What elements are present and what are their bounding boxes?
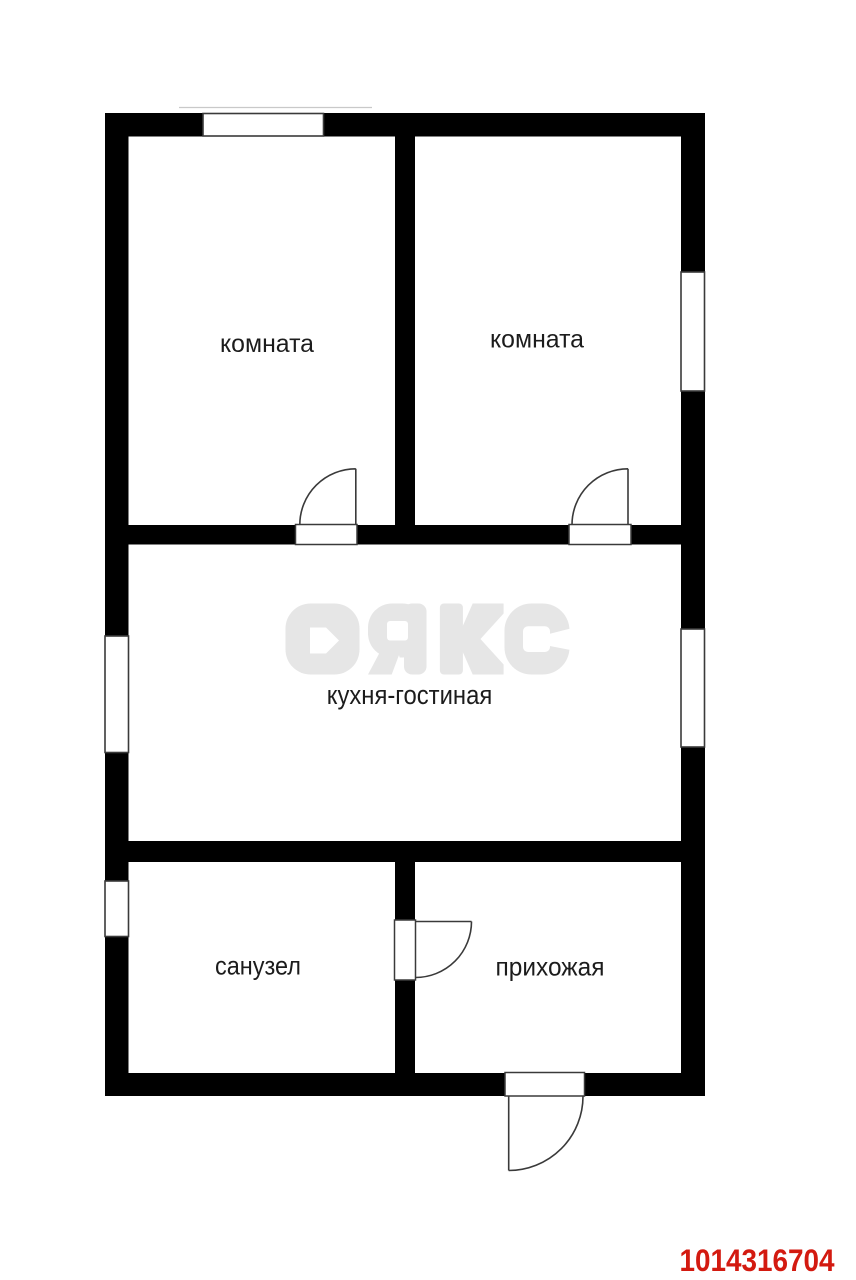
svg-text:кухня-гостиная: кухня-гостиная [327,680,493,710]
svg-text:комната: комната [490,326,584,354]
svg-text:1014316704: 1014316704 [680,1242,835,1278]
svg-text:прихожая: прихожая [496,952,605,982]
svg-text:комната: комната [220,330,314,358]
svg-text:санузел: санузел [215,951,301,981]
